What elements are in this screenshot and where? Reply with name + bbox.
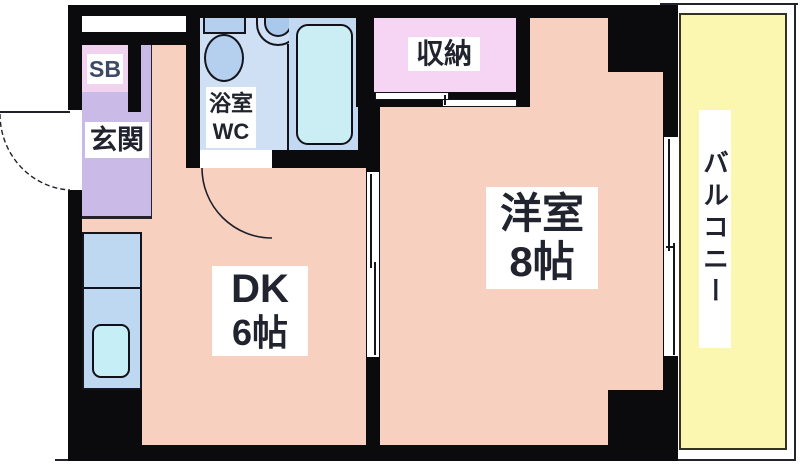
western-room-size: 8帖	[509, 238, 574, 286]
western-room-label: 洋室 8帖	[486, 187, 598, 289]
storage-slide-tick	[444, 95, 446, 105]
balcony-label: バルコニー	[699, 110, 731, 348]
wall-block-top-right	[608, 5, 678, 72]
wall-block-right-lower	[663, 356, 678, 461]
bathroom-label-line2: WC	[213, 118, 250, 146]
dk-label: DK 6帖	[212, 266, 308, 356]
partition-door-panel-1	[370, 174, 372, 268]
balcony-window-sash-2	[673, 243, 675, 355]
bathroom-label-line1: 浴室	[209, 90, 253, 118]
storage-label: 収納	[408, 37, 480, 71]
dk-size: 6帖	[232, 311, 288, 355]
room-dk-counter-strip	[142, 232, 152, 445]
partition-door-channel	[367, 172, 379, 357]
floorplan-canvas: SB 玄関 浴室 WC 収納	[0, 0, 800, 466]
frame-line-top	[660, 3, 798, 5]
bathroom-divider-line	[287, 44, 289, 150]
storage-slide-panel-1	[375, 92, 449, 100]
entrance-door-arc	[0, 100, 90, 200]
storage-slide-panel-2	[442, 99, 517, 107]
toilet-bowl	[204, 34, 244, 82]
balcony-window-sash-1	[668, 139, 670, 251]
vent-window	[82, 16, 188, 32]
frame-line-right	[794, 3, 796, 461]
balcony-window-tick	[666, 246, 675, 248]
shoe-box-label: SB	[87, 54, 123, 84]
kitchen-sink	[92, 324, 130, 378]
bathroom-door-arc	[196, 164, 280, 244]
bathtub	[296, 24, 353, 145]
kitchen-counter-divider	[83, 287, 141, 289]
partition-door-panel-2	[374, 262, 376, 355]
dk-name: DK	[231, 267, 289, 311]
western-room-name: 洋室	[500, 190, 584, 238]
genkan-label: 玄関	[85, 122, 149, 158]
room-dk-west-strip	[82, 219, 152, 232]
bathroom-label: 浴室 WC	[206, 87, 256, 148]
toilet-tank	[203, 18, 246, 34]
